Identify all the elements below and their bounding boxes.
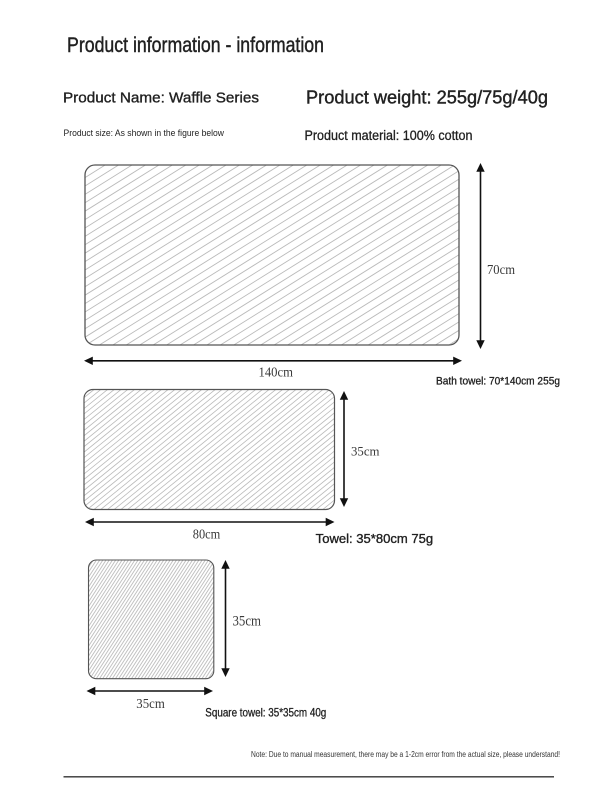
- svg-text:35cm: 35cm: [136, 697, 165, 712]
- svg-text:Product size: As shown in the: Product size: As shown in the figure bel…: [64, 128, 225, 139]
- svg-text:Product material: 100% cotton: Product material: 100% cotton: [305, 128, 473, 143]
- svg-text:Towel: 35*80cm 75g: Towel: 35*80cm 75g: [316, 531, 434, 546]
- svg-text:Square towel: 35*35cm 40g: Square towel: 35*35cm 40g: [205, 706, 326, 720]
- svg-text:Product Name: Waffle Series: Product Name: Waffle Series: [63, 90, 259, 107]
- svg-text:Product information - informat: Product information - information: [67, 34, 324, 57]
- svg-text:35cm: 35cm: [233, 614, 262, 630]
- svg-text:35cm: 35cm: [351, 444, 380, 459]
- svg-text:Note: Due to manual measuremen: Note: Due to manual measurement, there m…: [251, 750, 560, 759]
- svg-text:Bath towel: 70*140cm 255g: Bath towel: 70*140cm 255g: [436, 375, 560, 387]
- svg-text:80cm: 80cm: [193, 527, 221, 542]
- svg-text:70cm: 70cm: [487, 262, 515, 277]
- svg-text:Product weight: 255g/75g/40g: Product weight: 255g/75g/40g: [306, 88, 548, 108]
- svg-text:140cm: 140cm: [259, 365, 294, 380]
